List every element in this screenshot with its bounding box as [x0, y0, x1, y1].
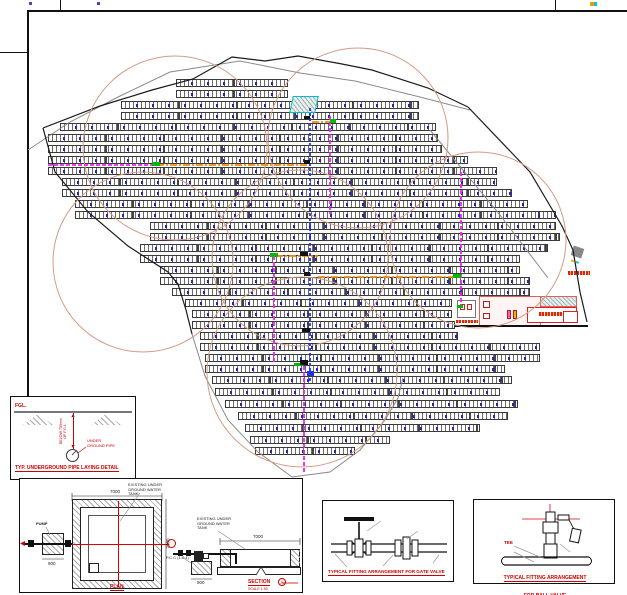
building-label — [539, 312, 563, 316]
gate-room-2 — [467, 304, 472, 310]
panel-row — [225, 400, 518, 408]
underground-pipe-detail-box: FGL. BELOW 750mm OF F.G.L. UNDER GROUND … — [10, 396, 136, 480]
section-dim-pump: 900 — [197, 580, 205, 585]
panel-row — [176, 90, 288, 98]
panel-row — [192, 321, 455, 329]
panel-row — [215, 388, 500, 396]
drawing-sheet: FGL. BELOW 750mm OF F.G.L. UNDER GROUND … — [0, 0, 627, 595]
underground-detail-title: TYP. UNDERGROUND PIPE LAYING DETAIL — [15, 465, 119, 472]
panel-row — [60, 123, 436, 131]
panel-row — [48, 167, 497, 175]
panel-row — [121, 112, 419, 120]
building-equipment-1 — [507, 310, 511, 319]
panel-row — [160, 266, 520, 274]
panel-row — [150, 222, 556, 230]
gate-structure-label — [456, 320, 478, 323]
building-base-line — [455, 325, 588, 327]
pcc-label: P.C.C (1:2:4) — [166, 556, 189, 561]
panel-row — [185, 299, 452, 307]
panel-row — [200, 332, 458, 340]
panel-row — [238, 412, 508, 420]
building-room-2 — [483, 313, 490, 319]
building-room-1 — [483, 301, 490, 308]
panel-row — [212, 376, 512, 384]
panel-row — [205, 365, 505, 373]
building-roof-hatched — [540, 296, 577, 307]
plan-section-box: 7000 900 7000 PUMP EXISTING UNDERGROUND … — [19, 478, 303, 593]
panel-row — [205, 354, 540, 362]
section-dim-top: 7000 — [253, 534, 263, 539]
panel-row — [150, 233, 560, 241]
panel-row — [192, 310, 452, 318]
ball-valve-box: TEE TYPICAL FITTING ARRANGEMENT FOR BALL… — [473, 499, 615, 584]
panel-row — [172, 288, 530, 296]
building-shed — [563, 311, 578, 323]
tee-label: TEE — [504, 540, 513, 545]
section-marker-a: A — [278, 578, 286, 586]
panel-row — [121, 101, 419, 109]
water-tank-symbol — [289, 96, 319, 113]
panel-row — [62, 178, 497, 186]
panel-row — [200, 343, 540, 351]
gate-room-1 — [460, 304, 465, 310]
panel-row — [140, 244, 548, 252]
section-tank-label: EXISTING UNDERGROUND WATERTANK — [197, 517, 231, 531]
panel-row — [48, 156, 468, 164]
gate-valve-title: TYPICAL FITTING ARRANGEMENT FOR GATE VAL… — [328, 569, 445, 576]
section-title: SECTION — [248, 579, 270, 586]
building-equipment-2 — [513, 310, 517, 319]
panel-row — [48, 134, 438, 142]
panel-row — [250, 436, 390, 444]
panel-row — [245, 424, 480, 432]
panel-row — [140, 255, 520, 263]
panel-row — [160, 277, 530, 285]
panel-row — [75, 211, 556, 219]
ball-valve-title: TYPICAL FITTING ARRANGEMENT FOR BALL VAL… — [474, 566, 616, 595]
panel-row — [176, 79, 288, 87]
section-scale: SCALE 1:50 — [248, 587, 268, 591]
panel-row — [48, 145, 442, 153]
panel-row — [75, 200, 528, 208]
gate-valve-box: TYPICAL FITTING ARRANGEMENT FOR GATE VAL… — [322, 500, 454, 582]
borehole-label — [568, 271, 590, 275]
panel-row — [62, 189, 512, 197]
panel-row — [255, 447, 355, 455]
